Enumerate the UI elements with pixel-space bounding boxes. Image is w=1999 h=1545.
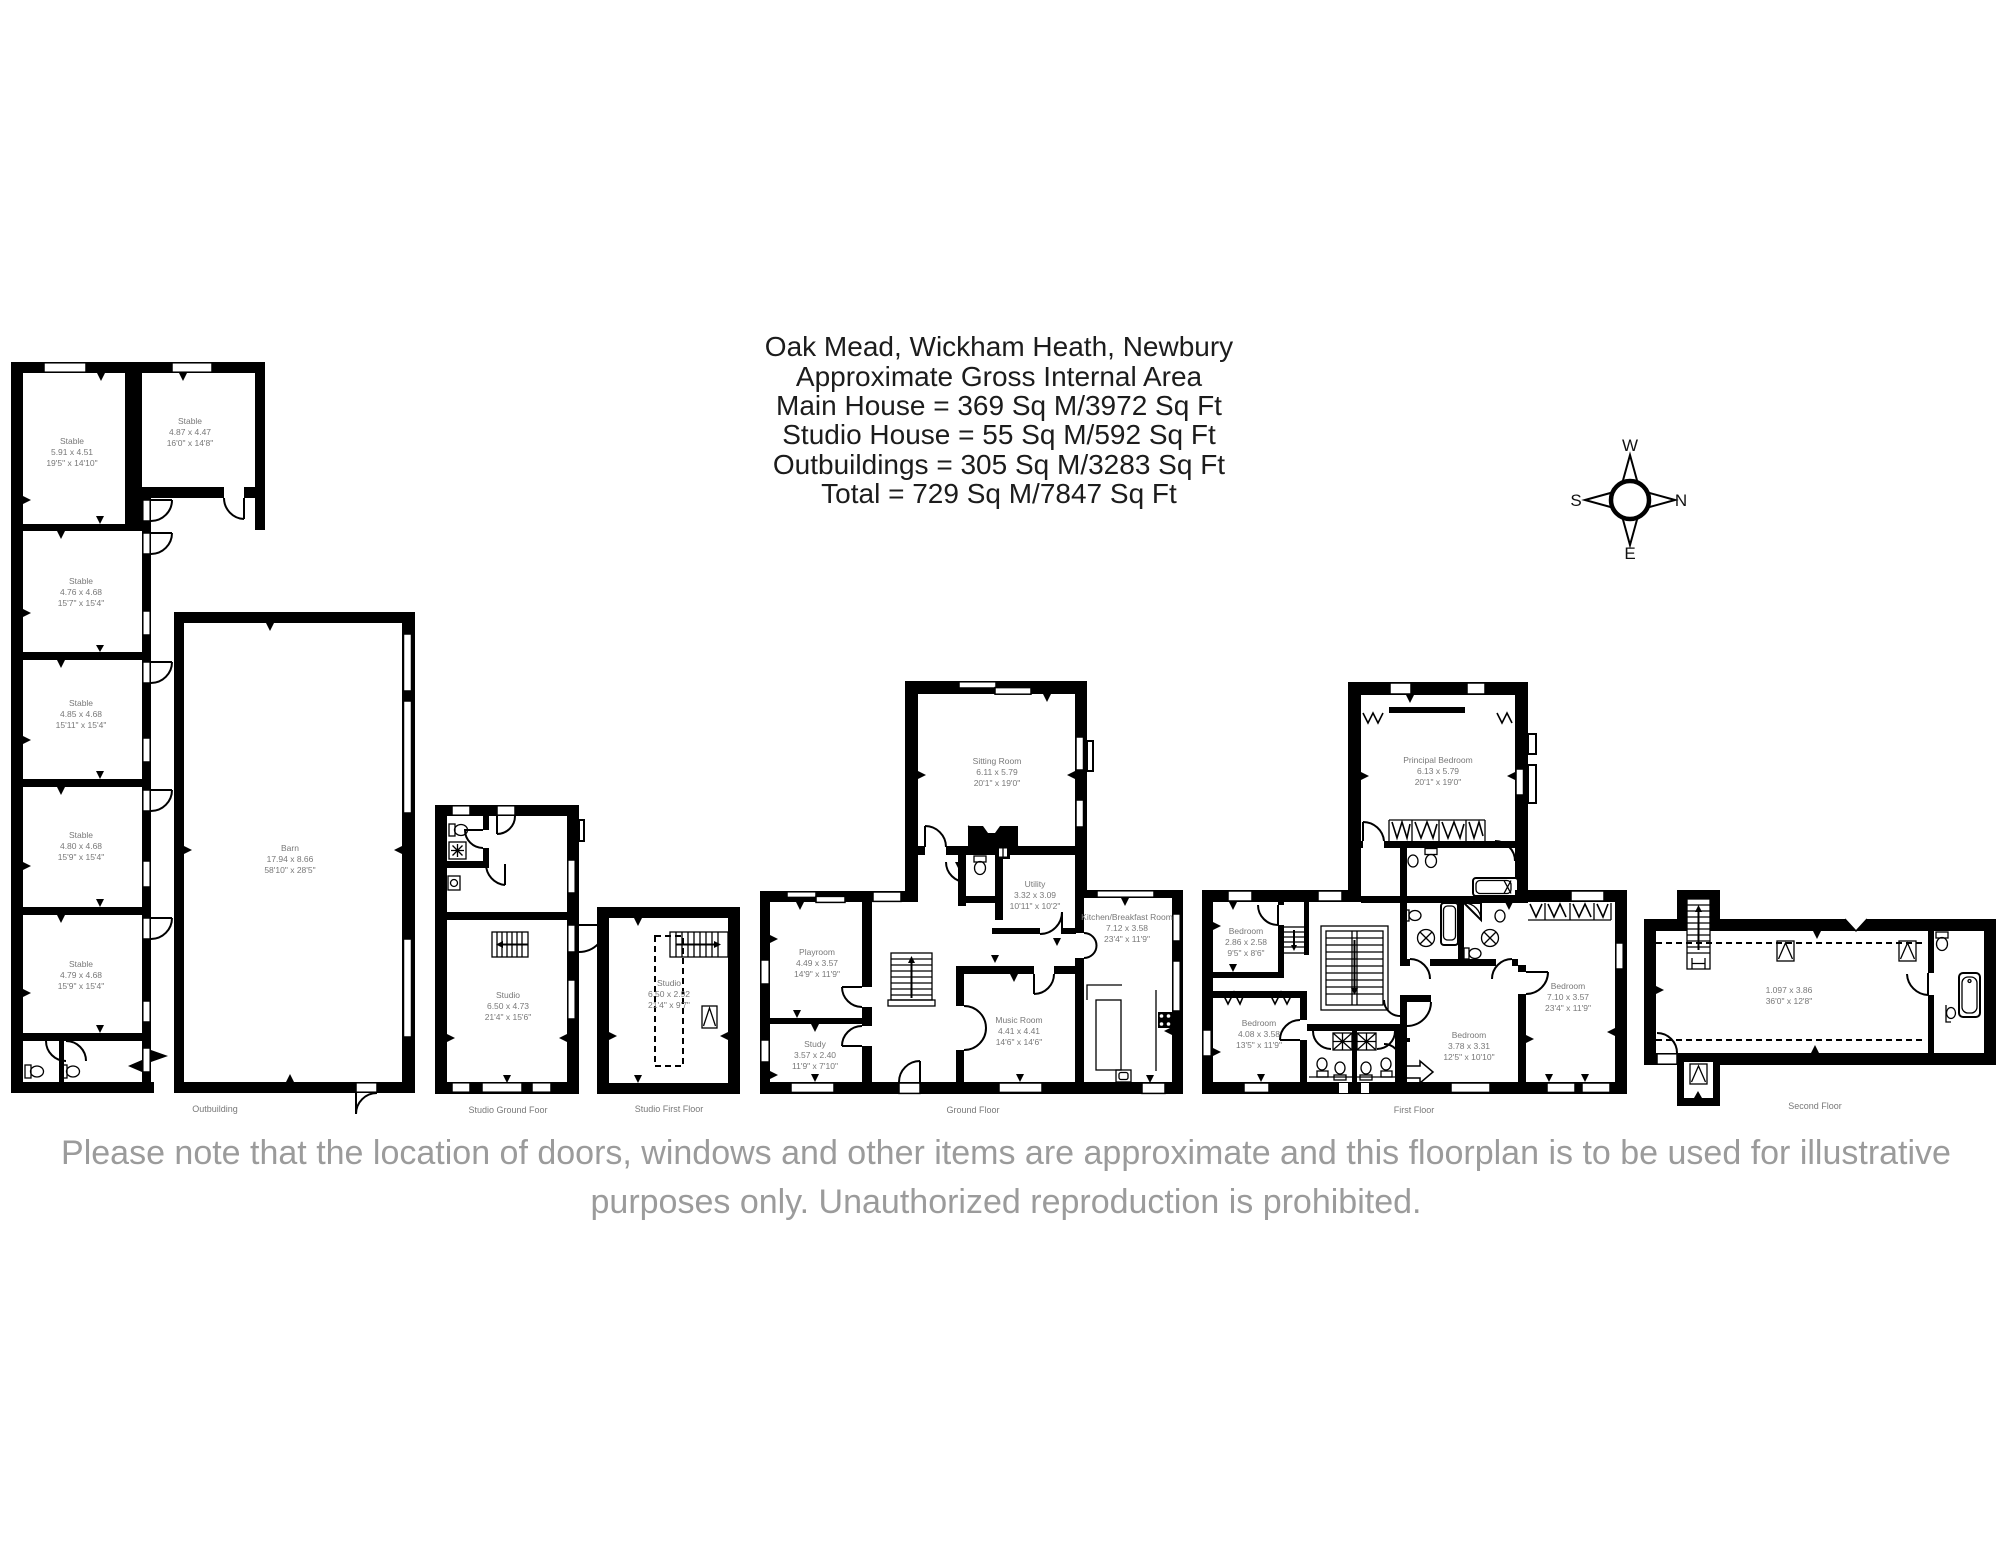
svg-text:4.08 x 3.58: 4.08 x 3.58 (1238, 1029, 1280, 1039)
svg-text:15'11" x 15'4": 15'11" x 15'4" (56, 720, 107, 730)
svg-text:4.85 x 4.68: 4.85 x 4.68 (60, 709, 102, 719)
svg-text:15'9" x 15'4": 15'9" x 15'4" (58, 981, 105, 991)
svg-text:Utility: Utility (1025, 879, 1047, 889)
svg-text:6.11 x 5.79: 6.11 x 5.79 (976, 767, 1018, 777)
svg-text:Studio First Floor: Studio First Floor (635, 1104, 704, 1114)
svg-text:N: N (1675, 491, 1687, 510)
svg-text:15'7" x 15'4": 15'7" x 15'4" (58, 598, 105, 608)
svg-text:Barn: Barn (281, 843, 299, 853)
svg-text:Approximate Gross Internal Are: Approximate Gross Internal Area (796, 361, 1203, 392)
svg-text:Second Floor: Second Floor (1788, 1101, 1842, 1111)
svg-text:36'0" x 12'8": 36'0" x 12'8" (1766, 996, 1813, 1006)
svg-text:7.10 x 3.57: 7.10 x 3.57 (1547, 992, 1589, 1002)
svg-text:1.097 x 3.86: 1.097 x 3.86 (1766, 985, 1813, 995)
svg-text:4.80 x 4.68: 4.80 x 4.68 (60, 841, 102, 851)
svg-text:6.50 x 4.73: 6.50 x 4.73 (487, 1001, 529, 1011)
svg-text:W: W (1622, 436, 1638, 455)
svg-text:21'4" x 9'7": 21'4" x 9'7" (648, 1000, 690, 1010)
svg-text:Principal Bedroom: Principal Bedroom (1403, 755, 1472, 765)
svg-text:purposes only. Unauthorized re: purposes only. Unauthorized reproduction… (591, 1183, 1422, 1221)
svg-text:12'5" x 10'10": 12'5" x 10'10" (1443, 1052, 1494, 1062)
svg-text:Studio Ground Foor: Studio Ground Foor (468, 1105, 547, 1115)
svg-text:First Floor: First Floor (1394, 1105, 1435, 1115)
svg-text:13'5" x 11'9": 13'5" x 11'9" (1236, 1040, 1282, 1050)
svg-text:Playroom: Playroom (799, 947, 835, 957)
svg-text:Stable: Stable (69, 576, 93, 586)
svg-text:9'5" x 8'6": 9'5" x 8'6" (1227, 948, 1264, 958)
svg-text:Stable: Stable (69, 830, 93, 840)
svg-text:Please note that the location: Please note that the location of doors, … (61, 1134, 1951, 1172)
svg-text:4.87 x 4.47: 4.87 x 4.47 (169, 427, 211, 437)
svg-text:58'10" x 28'5": 58'10" x 28'5" (264, 865, 315, 875)
svg-text:14'6" x 14'6": 14'6" x 14'6" (996, 1037, 1043, 1047)
svg-text:2.86 x 2.58: 2.86 x 2.58 (1225, 937, 1267, 947)
svg-text:Outbuilding: Outbuilding (192, 1104, 238, 1114)
svg-text:6.50 x 2.92: 6.50 x 2.92 (648, 989, 690, 999)
svg-text:16'0" x 14'8": 16'0" x 14'8" (167, 438, 214, 448)
svg-text:Studio House = 55 Sq M/592 Sq: Studio House = 55 Sq M/592 Sq Ft (782, 419, 1216, 450)
svg-text:4.41 x 4.41: 4.41 x 4.41 (998, 1026, 1040, 1036)
svg-text:Bedroom: Bedroom (1242, 1018, 1277, 1028)
svg-text:Ground Floor: Ground Floor (946, 1105, 999, 1115)
svg-text:Bedroom: Bedroom (1229, 926, 1264, 936)
svg-text:Oak Mead, Wickham Heath, Newbu: Oak Mead, Wickham Heath, Newbury (765, 331, 1233, 362)
svg-text:10'11" x 10'2": 10'11" x 10'2" (1010, 901, 1061, 911)
svg-text:Sitting Room: Sitting Room (973, 756, 1022, 766)
svg-text:21'4" x 15'6": 21'4" x 15'6" (485, 1012, 532, 1022)
svg-text:20'1" x 19'0": 20'1" x 19'0" (974, 778, 1021, 788)
svg-text:7.12 x 3.58: 7.12 x 3.58 (1106, 923, 1148, 933)
svg-text:23'4" x 11'9": 23'4" x 11'9" (1545, 1003, 1591, 1013)
svg-text:11'9" x 7'10": 11'9" x 7'10" (792, 1061, 838, 1071)
svg-text:Stable: Stable (69, 698, 93, 708)
svg-text:3.57 x 2.40: 3.57 x 2.40 (794, 1050, 836, 1060)
svg-text:4.76 x 4.68: 4.76 x 4.68 (60, 587, 102, 597)
svg-text:20'1" x 19'0": 20'1" x 19'0" (1415, 777, 1462, 787)
svg-text:3.78 x 3.31: 3.78 x 3.31 (1448, 1041, 1490, 1051)
svg-text:6.13 x 5.79: 6.13 x 5.79 (1417, 766, 1459, 776)
svg-text:17.94 x 8.66: 17.94 x 8.66 (267, 854, 314, 864)
svg-text:Bedroom: Bedroom (1452, 1030, 1487, 1040)
svg-text:3.32 x 3.09: 3.32 x 3.09 (1014, 890, 1056, 900)
svg-text:4.49 x 3.57: 4.49 x 3.57 (796, 958, 838, 968)
svg-text:Bedroom: Bedroom (1551, 981, 1586, 991)
svg-text:Study: Study (804, 1039, 826, 1049)
svg-text:Stable: Stable (178, 416, 202, 426)
svg-text:S: S (1570, 491, 1581, 510)
svg-text:14'9" x 11'9": 14'9" x 11'9" (794, 969, 840, 979)
svg-text:5.91 x 4.51: 5.91 x 4.51 (51, 447, 93, 457)
svg-text:Stable: Stable (60, 436, 84, 446)
svg-text:Studio: Studio (496, 990, 520, 1000)
svg-text:4.79 x 4.68: 4.79 x 4.68 (60, 970, 102, 980)
svg-text:E: E (1624, 544, 1635, 563)
svg-text:Outbuildings = 305 Sq M/3283 S: Outbuildings = 305 Sq M/3283 Sq Ft (773, 449, 1225, 480)
svg-text:Stable: Stable (69, 959, 93, 969)
svg-text:Music Room: Music Room (995, 1015, 1042, 1025)
svg-text:Kitchen/Breakfast Room: Kitchen/Breakfast Room (1081, 912, 1173, 922)
svg-text:Studio: Studio (657, 978, 681, 988)
svg-text:15'9" x 15'4": 15'9" x 15'4" (58, 852, 105, 862)
svg-text:Main House = 369 Sq M/3972 Sq: Main House = 369 Sq M/3972 Sq Ft (776, 390, 1222, 421)
svg-text:19'5" x 14'10": 19'5" x 14'10" (46, 458, 97, 468)
svg-text:Total = 729 Sq M/7847 Sq Ft: Total = 729 Sq M/7847 Sq Ft (821, 478, 1177, 509)
svg-text:23'4" x 11'9": 23'4" x 11'9" (1104, 934, 1150, 944)
